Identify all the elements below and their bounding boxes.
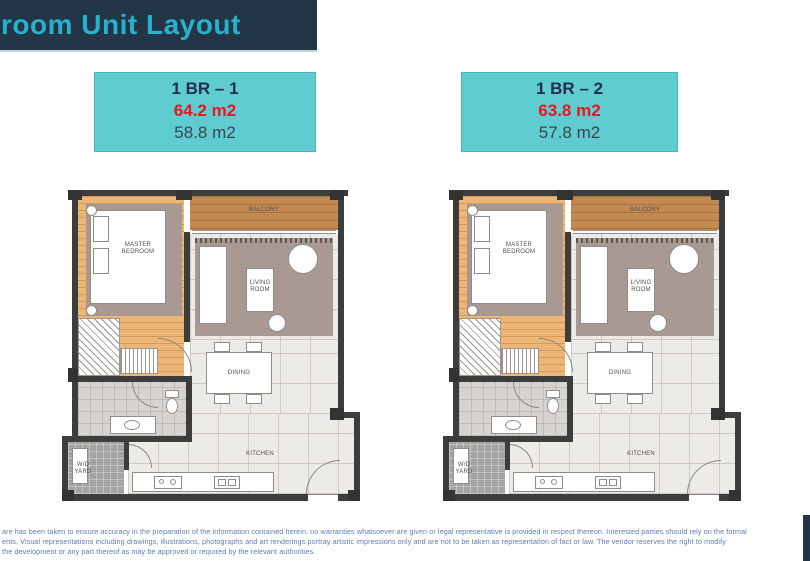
- wall-post: [176, 190, 192, 200]
- pillow: [93, 248, 109, 274]
- wall-post: [557, 190, 573, 200]
- armchair: [669, 244, 699, 274]
- entry-door-opening: [308, 494, 338, 501]
- wall: [567, 376, 573, 442]
- stove: [535, 476, 563, 489]
- sink-bowl: [599, 479, 607, 486]
- wall-post: [330, 408, 344, 420]
- bedside-lamp: [86, 305, 97, 316]
- sink-bowl: [609, 479, 617, 486]
- pillow: [474, 216, 490, 242]
- unit-net-area: 58.8 m2: [95, 123, 315, 143]
- wall: [184, 232, 190, 342]
- basin: [124, 420, 140, 430]
- sofa: [580, 246, 608, 324]
- wd-yard-label: W/D YARD: [68, 462, 98, 476]
- wd-yard-label: W/D YARD: [449, 462, 479, 476]
- unit-gross-area: 64.2 m2: [95, 101, 315, 121]
- bedroom-door-arc: [539, 338, 573, 372]
- sink-bowl: [228, 479, 236, 486]
- bedside-lamp: [86, 205, 97, 216]
- wall-post: [443, 490, 455, 501]
- wall: [453, 190, 729, 196]
- bedside-lamp: [467, 205, 478, 216]
- wall: [735, 412, 741, 501]
- kitchen-label: KITCHEN: [609, 451, 673, 458]
- toilet: [547, 398, 559, 414]
- stove-burner: [540, 479, 545, 484]
- wall: [338, 190, 344, 418]
- wall: [72, 376, 192, 382]
- stove-burner: [159, 479, 164, 484]
- title-banner: room Unit Layout: [0, 0, 317, 50]
- living-blind-strip: [195, 238, 333, 243]
- wall: [354, 412, 360, 501]
- wall-post: [449, 368, 459, 382]
- wall-post: [711, 190, 725, 200]
- living-blind-strip: [576, 238, 714, 243]
- page-title: room Unit Layout: [0, 0, 317, 50]
- dining-chair: [246, 342, 262, 352]
- unit-header-1br1: 1 BR – 1 64.2 m2 58.8 m2: [94, 72, 316, 152]
- wall-post: [62, 490, 74, 501]
- kitchen-label: KITCHEN: [228, 451, 292, 458]
- toilet-tank: [546, 390, 560, 398]
- master-bedroom-label: MASTER BEDROOM: [118, 242, 158, 256]
- pillow: [93, 216, 109, 242]
- dining-chair: [627, 394, 643, 404]
- balcony-label: BALCONY: [190, 207, 338, 214]
- bedside-lamp: [467, 305, 478, 316]
- wall: [186, 376, 192, 442]
- dining-chair: [214, 394, 230, 404]
- disclaimer: are has been taken to ensure accuracy in…: [2, 527, 808, 557]
- stove-burner: [551, 479, 557, 485]
- floorplan-1br2: MASTER BEDROOM BALCONY LIVING ROOM DININ…: [443, 190, 741, 505]
- side-table: [268, 314, 286, 332]
- pillow: [474, 248, 490, 274]
- disclaimer-line: are has been taken to ensure accuracy in…: [2, 527, 808, 537]
- wardrobe: [459, 318, 501, 376]
- floorplan-1br1: MASTER BEDROOM BALCONY LIVING ROOM DININ…: [62, 190, 360, 505]
- dining-chair: [595, 342, 611, 352]
- living-room-label: LIVING ROOM: [626, 280, 656, 294]
- unit-header-1br2: 1 BR – 2 63.8 m2 57.8 m2: [461, 72, 678, 152]
- disclaimer-line: ents. Visual representations including d…: [2, 537, 808, 547]
- wall: [453, 190, 459, 442]
- side-table: [649, 314, 667, 332]
- toilet: [166, 398, 178, 414]
- basin: [505, 420, 521, 430]
- stove: [154, 476, 182, 489]
- wall: [72, 190, 78, 442]
- sofa: [199, 246, 227, 324]
- wall-post: [68, 368, 78, 382]
- wall: [72, 190, 348, 196]
- entry-door-opening: [689, 494, 719, 501]
- dining-chair: [595, 394, 611, 404]
- toilet-tank: [165, 390, 179, 398]
- balcony-label: BALCONY: [571, 207, 719, 214]
- stove-burner: [170, 479, 176, 485]
- living-room-label: LIVING ROOM: [245, 280, 275, 294]
- disclaimer-line: the development or any part thereof as m…: [2, 547, 808, 557]
- wall: [565, 232, 571, 342]
- wardrobe: [78, 318, 120, 376]
- wall-post: [330, 190, 344, 200]
- sink-bowl: [218, 479, 226, 486]
- slide-page: { "page": { "title": "room Unit Layout" …: [0, 0, 810, 561]
- unit-gross-area: 63.8 m2: [462, 101, 677, 121]
- corner-accent-bar: [803, 515, 810, 561]
- wall-post: [449, 190, 463, 200]
- wall-post: [711, 408, 725, 420]
- wall-post: [729, 490, 741, 501]
- armchair: [288, 244, 318, 274]
- closet: [501, 348, 539, 374]
- wall: [453, 376, 573, 382]
- bedroom-door-arc: [158, 338, 192, 372]
- wall: [719, 190, 725, 418]
- dining-chair: [627, 342, 643, 352]
- unit-net-area: 57.8 m2: [462, 123, 677, 143]
- wall-post: [68, 190, 82, 200]
- unit-name: 1 BR – 1: [95, 79, 315, 99]
- dining-chair: [214, 342, 230, 352]
- unit-name: 1 BR – 2: [462, 79, 677, 99]
- dining-label: DINING: [206, 370, 272, 377]
- wall: [124, 442, 129, 470]
- wall-post: [348, 490, 360, 501]
- dining-chair: [246, 394, 262, 404]
- wall: [505, 442, 510, 470]
- closet: [120, 348, 158, 374]
- dining-label: DINING: [587, 370, 653, 377]
- master-bedroom-label: MASTER BEDROOM: [499, 242, 539, 256]
